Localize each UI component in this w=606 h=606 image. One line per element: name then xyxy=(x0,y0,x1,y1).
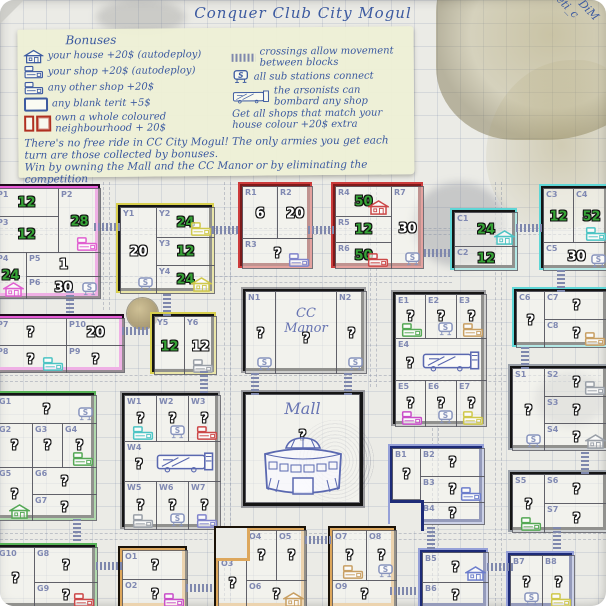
territory-label: C5 xyxy=(546,244,557,253)
territory-value: ? xyxy=(437,398,445,411)
territory-label: S5 xyxy=(515,476,526,485)
territory-value: ? xyxy=(137,413,145,426)
svg-text:S: S xyxy=(175,426,180,435)
territory-C1[interactable]: C124 xyxy=(454,212,518,247)
territory-G8[interactable]: G8? xyxy=(34,547,98,583)
territory-B6[interactable]: B6? xyxy=(422,582,489,606)
territory-label: O2 xyxy=(125,581,137,590)
legend-text: any blank terit +5$ xyxy=(52,98,151,110)
svg-text:S: S xyxy=(529,593,534,602)
block-B-south: B5?B6? xyxy=(420,550,486,606)
svg-text:S: S xyxy=(443,411,448,420)
block-Mall: Mall? xyxy=(243,392,363,506)
territory-value: 20 xyxy=(86,326,104,339)
territory-value: ? xyxy=(62,590,70,603)
substation-icon: S xyxy=(256,357,273,372)
crossing-icon xyxy=(581,452,589,474)
territory-P7[interactable]: P7? xyxy=(0,318,67,346)
shop-icon xyxy=(585,227,606,241)
territory-label: R7 xyxy=(394,188,406,197)
territory-value: ? xyxy=(201,413,209,426)
territory-P2[interactable]: P228 xyxy=(58,188,101,253)
territory-S6[interactable]: S6? xyxy=(544,474,606,504)
block-C-east: C312C452C530S xyxy=(541,186,606,268)
territory-G10[interactable]: G10? xyxy=(0,547,35,606)
legend-row: Get all shops that match your house colo… xyxy=(232,107,408,131)
territory-E3[interactable]: E3? xyxy=(456,294,487,339)
territory-label: S4 xyxy=(547,425,558,434)
substation-icon: S xyxy=(169,425,186,440)
substation-icon: S xyxy=(525,434,542,449)
block-B-east: B7?SB8? xyxy=(508,553,572,606)
territory-label: S7 xyxy=(547,505,558,514)
territory-O3[interactable]: O3? xyxy=(218,557,247,606)
territory-label: G3 xyxy=(35,425,47,434)
territory-P3[interactable]: P312 xyxy=(0,216,59,253)
territory-label: B5 xyxy=(425,554,437,563)
territory-B8[interactable]: B8? xyxy=(542,555,575,606)
shop-icon xyxy=(76,237,98,251)
block-G-main: G1?SG2?G3?G4?G5?G6?G7? xyxy=(0,393,94,518)
territory-label: R1 xyxy=(245,188,257,197)
territory-S5[interactable]: S5? xyxy=(512,474,545,533)
territory-W1[interactable]: W1? xyxy=(124,395,157,442)
substation-icon: S xyxy=(81,282,98,297)
territory-Y6[interactable]: Y612 xyxy=(184,316,217,375)
house-icon xyxy=(24,49,44,63)
mall-icon xyxy=(257,434,349,498)
territory-S4[interactable]: S4? xyxy=(544,423,606,451)
territory-S1[interactable]: S1?S xyxy=(512,368,545,451)
territory-E6[interactable]: E6?S xyxy=(425,380,457,427)
territory-O7[interactable]: O7? xyxy=(332,530,367,581)
territory-value: ? xyxy=(201,500,209,513)
territory-value: ? xyxy=(449,484,457,497)
crossing-icon xyxy=(516,224,542,232)
shop-icon xyxy=(367,253,389,267)
crossing-icon xyxy=(122,327,148,335)
territory-label: G2 xyxy=(0,425,11,434)
arsonist-icon xyxy=(232,90,270,104)
territory-value: ? xyxy=(452,590,460,603)
svg-text:S: S xyxy=(262,358,267,367)
territory-G5[interactable]: G5? xyxy=(0,467,33,521)
territory-label: S1 xyxy=(515,370,526,379)
block-B-main: B1?B2?B3?B4? xyxy=(390,446,482,522)
territory-label: P1 xyxy=(0,190,8,199)
territory-value: ? xyxy=(449,457,457,470)
territory-label: R2 xyxy=(280,188,292,197)
territory-value: ? xyxy=(468,311,476,324)
territory-label: R6 xyxy=(338,244,350,253)
legend-note-line: Win by owning the Mall and the CC Manor … xyxy=(25,158,409,185)
shop-icon xyxy=(288,253,310,267)
landmark-label: Mall xyxy=(246,401,359,416)
shop-icon xyxy=(196,426,218,440)
territory-C8[interactable]: C8? xyxy=(544,319,606,348)
legend-row: S all sub stations connect xyxy=(232,68,408,85)
territory-label: R4 xyxy=(338,188,350,197)
crossing-icon xyxy=(186,584,212,592)
territory-label: B8 xyxy=(545,557,557,566)
arsonist-icon xyxy=(422,350,480,372)
territory-label: W2 xyxy=(159,397,173,406)
territory-value: 12 xyxy=(477,252,495,265)
territory-B7[interactable]: B7?S xyxy=(510,555,543,606)
territory-value: ? xyxy=(573,431,581,444)
territory-O4[interactable]: O4? xyxy=(246,530,277,581)
territory-label: S3 xyxy=(547,398,558,407)
shop-icon xyxy=(462,323,484,337)
crossing-icon xyxy=(163,294,171,316)
territory-R5[interactable]: R512 xyxy=(335,216,392,243)
territory-P8[interactable]: P8? xyxy=(0,345,67,373)
territory-label: O8 xyxy=(369,532,381,541)
territory-label: E4 xyxy=(398,340,409,349)
legend-text: your house +20$ (autodeploy) xyxy=(48,49,202,61)
territory-W2[interactable]: W2?S xyxy=(156,395,189,442)
territory-W5[interactable]: W5? xyxy=(124,481,157,530)
territory-E2[interactable]: E2?S xyxy=(425,294,457,339)
territory-value: ? xyxy=(135,459,143,472)
territory-W4[interactable]: W4? xyxy=(124,441,221,482)
territory-C3[interactable]: C312 xyxy=(543,188,574,243)
crossing-icon xyxy=(487,563,513,571)
shop-icon xyxy=(24,66,44,79)
territory-G2[interactable]: G2? xyxy=(0,423,33,468)
block-O-mid: O4?O5?O3?O6? xyxy=(216,528,304,606)
svg-text:S: S xyxy=(531,435,536,444)
territory-value: ? xyxy=(27,353,35,366)
territory-value: ? xyxy=(348,328,356,341)
territory-R3[interactable]: R3? xyxy=(242,238,313,269)
territory-label: B6 xyxy=(425,584,437,593)
territory-value: ? xyxy=(44,440,52,453)
svg-text:S: S xyxy=(596,255,601,264)
territory-P10[interactable]: P1020 xyxy=(66,318,125,346)
crossing-icon xyxy=(94,223,120,231)
crossing-icon xyxy=(212,226,238,234)
house-icon xyxy=(9,504,30,519)
territory-MALL[interactable]: Mall? xyxy=(245,394,360,503)
territory-W6[interactable]: W6?S xyxy=(156,481,189,530)
territory-value: ? xyxy=(527,314,535,327)
territory-label: E6 xyxy=(428,382,439,391)
territory-O8[interactable]: O8?S xyxy=(366,530,397,581)
legend-row: your house +20$ (autodeploy) xyxy=(24,47,232,64)
territory-G3[interactable]: G3? xyxy=(32,423,63,468)
territory-C7[interactable]: C7? xyxy=(544,291,606,320)
territory-W3[interactable]: W3? xyxy=(188,395,221,442)
crossing-icon xyxy=(427,527,435,549)
neighbourhood-icon xyxy=(24,115,51,131)
territory-label: W3 xyxy=(191,397,205,406)
substation-icon: S xyxy=(169,513,186,528)
territory-O6[interactable]: O6? xyxy=(246,580,307,606)
territory-label: G10 xyxy=(0,549,17,558)
territory-E1[interactable]: E1? xyxy=(395,294,426,339)
territory-B5[interactable]: B5? xyxy=(422,552,489,583)
territory-value: 24 xyxy=(1,270,19,283)
svg-text:S: S xyxy=(443,323,448,332)
territory-value: 12 xyxy=(354,224,372,237)
territory-value: ? xyxy=(137,500,145,513)
territory-label: C2 xyxy=(457,248,468,257)
svg-text:S: S xyxy=(87,283,92,292)
block-E-block: E1?E2?SE3?E4?E5?E6?SE7? xyxy=(393,292,484,424)
territory-label: C8 xyxy=(547,321,558,330)
territory-value: 20 xyxy=(286,207,304,220)
block-P-lower: P7?P1020P8?P9? xyxy=(0,316,122,370)
block-Y-upper: Y120SY224Y312Y424 xyxy=(118,205,212,291)
territory-B2[interactable]: B2? xyxy=(420,448,485,477)
territory-label: Y2 xyxy=(159,209,170,218)
legend-note: Bonuses your house +20$ (autodeploy) you… xyxy=(17,26,414,177)
territory-value: ? xyxy=(151,559,159,572)
legend-text: the arsonists can bombard any shop xyxy=(274,84,408,107)
territory-C4[interactable]: C452 xyxy=(573,188,606,243)
territory-value: ? xyxy=(573,483,581,496)
arsonist-icon xyxy=(156,451,214,473)
territory-C2[interactable]: C212 xyxy=(454,246,518,271)
territory-O2[interactable]: O2? xyxy=(122,579,188,606)
substation-icon: S xyxy=(377,564,394,579)
territory-value: 12 xyxy=(176,246,194,259)
territory-label: Y5 xyxy=(157,318,168,327)
crossing-icon xyxy=(251,373,259,395)
crossing-icon xyxy=(390,587,416,595)
territory-P1[interactable]: P112 xyxy=(0,188,59,217)
legend-text: your shop +20$ (autodeploy) xyxy=(48,65,196,77)
territory-P5[interactable]: P51 xyxy=(26,252,101,277)
territory-N2[interactable]: N2?S xyxy=(336,291,367,374)
territory-label: W5 xyxy=(127,483,141,492)
territory-O1[interactable]: O1? xyxy=(122,550,188,580)
crossing-icon xyxy=(66,291,74,313)
territory-value: ? xyxy=(378,550,386,563)
svg-text:S: S xyxy=(353,358,358,367)
legend-row: the arsonists can bombard any shop xyxy=(232,84,408,108)
territory-Y5[interactable]: Y512 xyxy=(154,316,185,375)
territory-value: 12 xyxy=(17,197,35,210)
territory-E5[interactable]: E5? xyxy=(395,380,426,427)
territory-value: ? xyxy=(525,405,533,418)
territory-label: G9 xyxy=(37,584,49,593)
territory-value: ? xyxy=(346,550,354,563)
territory-value: ? xyxy=(573,512,581,525)
house-icon xyxy=(3,282,24,297)
substation-icon: S xyxy=(404,252,421,267)
territory-value: ? xyxy=(523,577,531,590)
territory-label: Y6 xyxy=(187,318,198,327)
territory-value: ? xyxy=(573,328,581,341)
territory-value: ? xyxy=(302,332,310,345)
territory-G7[interactable]: G7? xyxy=(32,494,97,521)
territory-E4[interactable]: E4? xyxy=(395,338,487,381)
territory-label: G5 xyxy=(0,469,11,478)
territory-label: C1 xyxy=(457,214,468,223)
block-O-east: O7?O8?SO9? xyxy=(330,528,394,606)
territory-value: ? xyxy=(229,578,237,591)
territory-value: 52 xyxy=(582,210,600,223)
block-R-west: R16R220R3? xyxy=(240,184,310,266)
territory-value: ? xyxy=(407,311,415,324)
legend-row: any other shop +20$ xyxy=(24,79,232,96)
territory-O9[interactable]: O9? xyxy=(332,580,397,606)
block-notch xyxy=(216,528,250,561)
territory-label: G8 xyxy=(37,549,49,558)
territory-NC[interactable]: CC Manor? xyxy=(275,291,337,374)
territory-G6[interactable]: G6? xyxy=(32,467,97,495)
territory-value: ? xyxy=(92,353,100,366)
territory-O5[interactable]: O5? xyxy=(276,530,307,581)
territory-label: Y1 xyxy=(123,209,134,218)
substation-icon: S xyxy=(437,410,454,425)
territory-label: G1 xyxy=(0,397,11,406)
territory-value: ? xyxy=(61,502,69,515)
shop-icon xyxy=(42,357,64,371)
territory-G1[interactable]: G1?S xyxy=(0,395,97,424)
crossing-icon xyxy=(557,270,565,292)
house-icon xyxy=(191,277,212,292)
territory-value: ? xyxy=(468,398,476,411)
territory-label: S2 xyxy=(547,370,558,379)
territory-value: 28 xyxy=(70,215,88,228)
territory-value: ? xyxy=(151,588,159,601)
territory-W7[interactable]: W7? xyxy=(188,481,221,530)
territory-label: P10 xyxy=(69,320,86,329)
territory-N1[interactable]: N1?S xyxy=(245,291,276,374)
svg-text:S: S xyxy=(175,514,180,523)
substation-icon: S xyxy=(437,322,454,337)
territory-R7[interactable]: R730S xyxy=(391,186,424,269)
territory-C5[interactable]: C530S xyxy=(543,242,606,271)
territory-value: ? xyxy=(274,248,282,261)
territory-value: ? xyxy=(573,377,581,390)
territory-label: P7 xyxy=(0,320,8,329)
svg-text:S: S xyxy=(83,408,88,417)
shop-icon xyxy=(132,426,154,440)
territory-value: ? xyxy=(573,300,581,313)
territory-B3[interactable]: B3? xyxy=(420,476,485,503)
shop-icon xyxy=(401,411,423,425)
territory-value: ? xyxy=(288,550,296,563)
crossing-icon xyxy=(553,527,561,549)
block-W-block: W1?W2?SW3?W4?W5?W6?SW7? xyxy=(122,393,218,527)
shop-icon xyxy=(584,332,606,346)
territory-value: ? xyxy=(257,328,265,341)
shop-icon xyxy=(24,82,44,95)
shop-icon xyxy=(401,323,423,337)
territory-value: 20 xyxy=(129,246,147,259)
svg-text:S: S xyxy=(238,71,243,80)
shop-icon xyxy=(460,487,482,501)
substation-icon: S xyxy=(137,277,154,292)
territory-C6[interactable]: C6? xyxy=(516,291,545,348)
territory-R6[interactable]: R650 xyxy=(335,242,392,269)
svg-text:S: S xyxy=(383,565,388,574)
territory-E7[interactable]: E7? xyxy=(456,380,487,427)
legend-note-line: There's no free ride in CC City Mogul! T… xyxy=(24,134,408,161)
territory-label: C7 xyxy=(547,293,558,302)
territory-P4[interactable]: P424 xyxy=(0,252,27,299)
shop-icon xyxy=(72,452,94,466)
crossing-icon xyxy=(344,373,352,395)
territory-B4[interactable]: B4? xyxy=(420,502,485,525)
territory-value: ? xyxy=(12,573,20,586)
territory-S2[interactable]: S2? xyxy=(544,368,606,397)
territory-label: W7 xyxy=(191,483,205,492)
territory-Y1[interactable]: Y120S xyxy=(120,207,157,294)
substation-icon: S xyxy=(347,357,364,372)
territory-label: P3 xyxy=(0,218,8,227)
crossing-icon xyxy=(521,347,529,369)
block-S-south: S5?S6?S7? xyxy=(510,472,606,530)
territory-label: O6 xyxy=(249,582,261,591)
territory-Y3[interactable]: Y312 xyxy=(156,237,215,266)
substation-icon: S xyxy=(590,254,606,269)
territory-label: R3 xyxy=(245,240,257,249)
territory-label: G7 xyxy=(35,496,47,505)
territory-label: C4 xyxy=(576,190,587,199)
block-R-east: R450R512R650R730S xyxy=(333,184,421,266)
territory-label: P4 xyxy=(0,254,8,263)
territory-G4[interactable]: G4? xyxy=(62,423,97,468)
territory-P6[interactable]: P630S xyxy=(26,276,101,299)
legend-text: all sub stations connect xyxy=(254,71,374,83)
territory-value: 24 xyxy=(477,224,495,237)
house-icon xyxy=(585,434,606,449)
legend-header: Bonuses xyxy=(65,30,407,47)
territory-value: ? xyxy=(407,398,415,411)
territory-G9[interactable]: G9? xyxy=(34,582,98,606)
territory-Y2[interactable]: Y224 xyxy=(156,207,215,238)
game-map: Conquer Club City Mogul Mapmaker - DiM x… xyxy=(0,0,606,606)
territory-value: 12 xyxy=(549,210,567,223)
legend-row: own a whole coloured neighbourhood + 20$ xyxy=(24,111,232,135)
shop-icon xyxy=(584,381,606,395)
territory-value: ? xyxy=(62,559,70,572)
territory-R4[interactable]: R450 xyxy=(335,186,392,217)
territory-B1[interactable]: B1? xyxy=(392,448,421,500)
territory-label: W4 xyxy=(127,443,141,452)
territory-value: ? xyxy=(449,507,457,520)
crossing-icon xyxy=(308,226,334,234)
territory-P9[interactable]: P9? xyxy=(66,345,125,373)
territory-label: C3 xyxy=(546,190,557,199)
territory-label: B3 xyxy=(423,478,435,487)
territory-value: ? xyxy=(403,469,411,482)
svg-text:S: S xyxy=(143,278,148,287)
territory-label: E3 xyxy=(459,296,470,305)
territory-Y4[interactable]: Y424 xyxy=(156,265,215,294)
territory-value: ? xyxy=(573,404,581,417)
shop-icon xyxy=(196,514,218,528)
territory-label: G4 xyxy=(65,425,77,434)
territory-label: G6 xyxy=(35,469,47,478)
territory-R1[interactable]: R16 xyxy=(242,186,278,239)
crossing-icon xyxy=(73,519,81,541)
territory-label: R5 xyxy=(338,218,350,227)
territory-label: O4 xyxy=(249,532,261,541)
shop-icon xyxy=(163,593,185,606)
territory-value: 1 xyxy=(59,258,68,271)
territory-S3[interactable]: S3? xyxy=(544,396,606,424)
legend-row: crossings allow movement between blocks xyxy=(232,45,408,69)
legend-text: crossings allow movement between blocks xyxy=(260,45,408,68)
territory-value: ? xyxy=(273,589,281,602)
territory-label: E1 xyxy=(398,296,409,305)
